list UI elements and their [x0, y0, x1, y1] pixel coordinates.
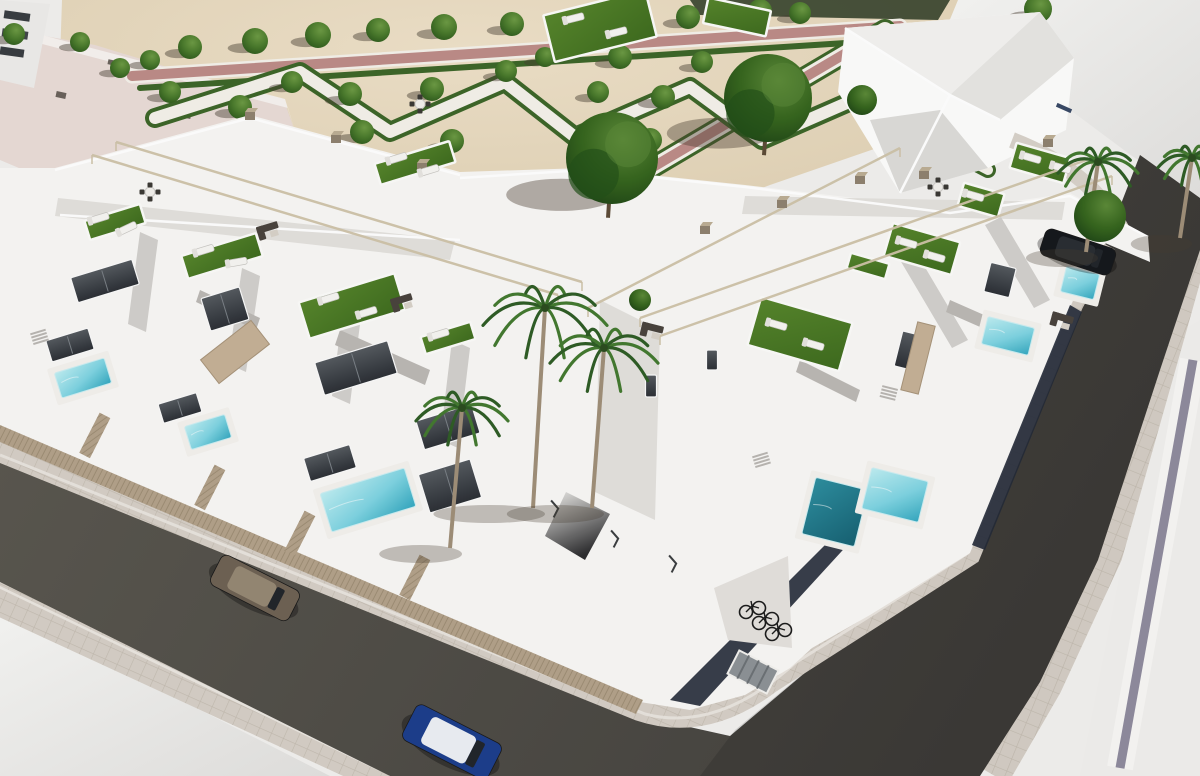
vignette — [0, 0, 1200, 776]
architectural-render-image: Aerial 3D architectural render of a whit… — [0, 0, 1200, 776]
